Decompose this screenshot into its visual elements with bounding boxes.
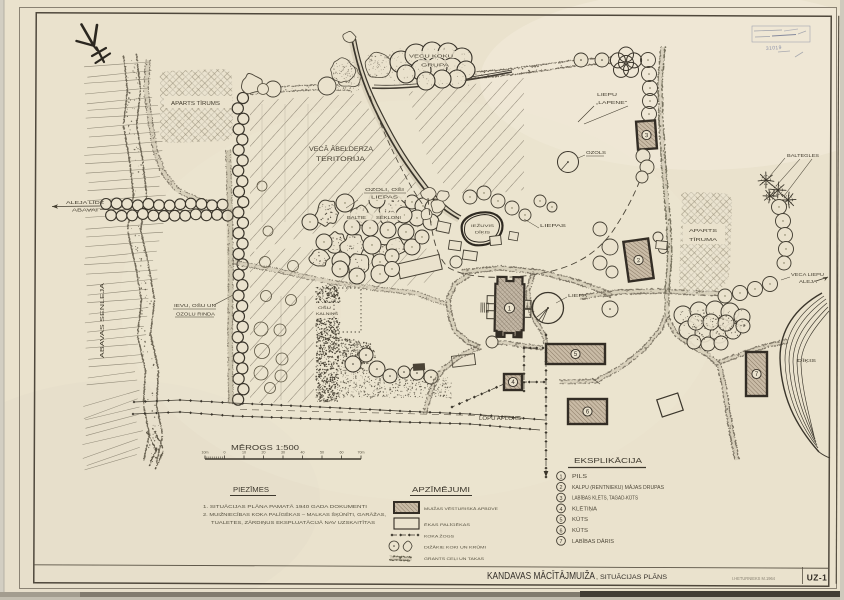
svg-text:ALEJA LĪDZ: ALEJA LĪDZ: [66, 199, 104, 205]
svg-text:VECĀ ĀBELDERZA: VECĀ ĀBELDERZA: [309, 145, 374, 153]
svg-text:IEVU, OŠU UN: IEVU, OŠU UN: [174, 303, 216, 308]
svg-text:ABAVAI: ABAVAI: [72, 208, 98, 213]
svg-text:APARTS TĪRUMS: APARTS TĪRUMS: [171, 100, 221, 107]
svg-text:ABAVAS SENLEJA: ABAVAS SENLEJA: [100, 283, 106, 358]
svg-text:TERITORIJA: TERITORIJA: [316, 156, 366, 163]
svg-text:OZOLU RINDA: OZOLU RINDA: [176, 312, 215, 317]
